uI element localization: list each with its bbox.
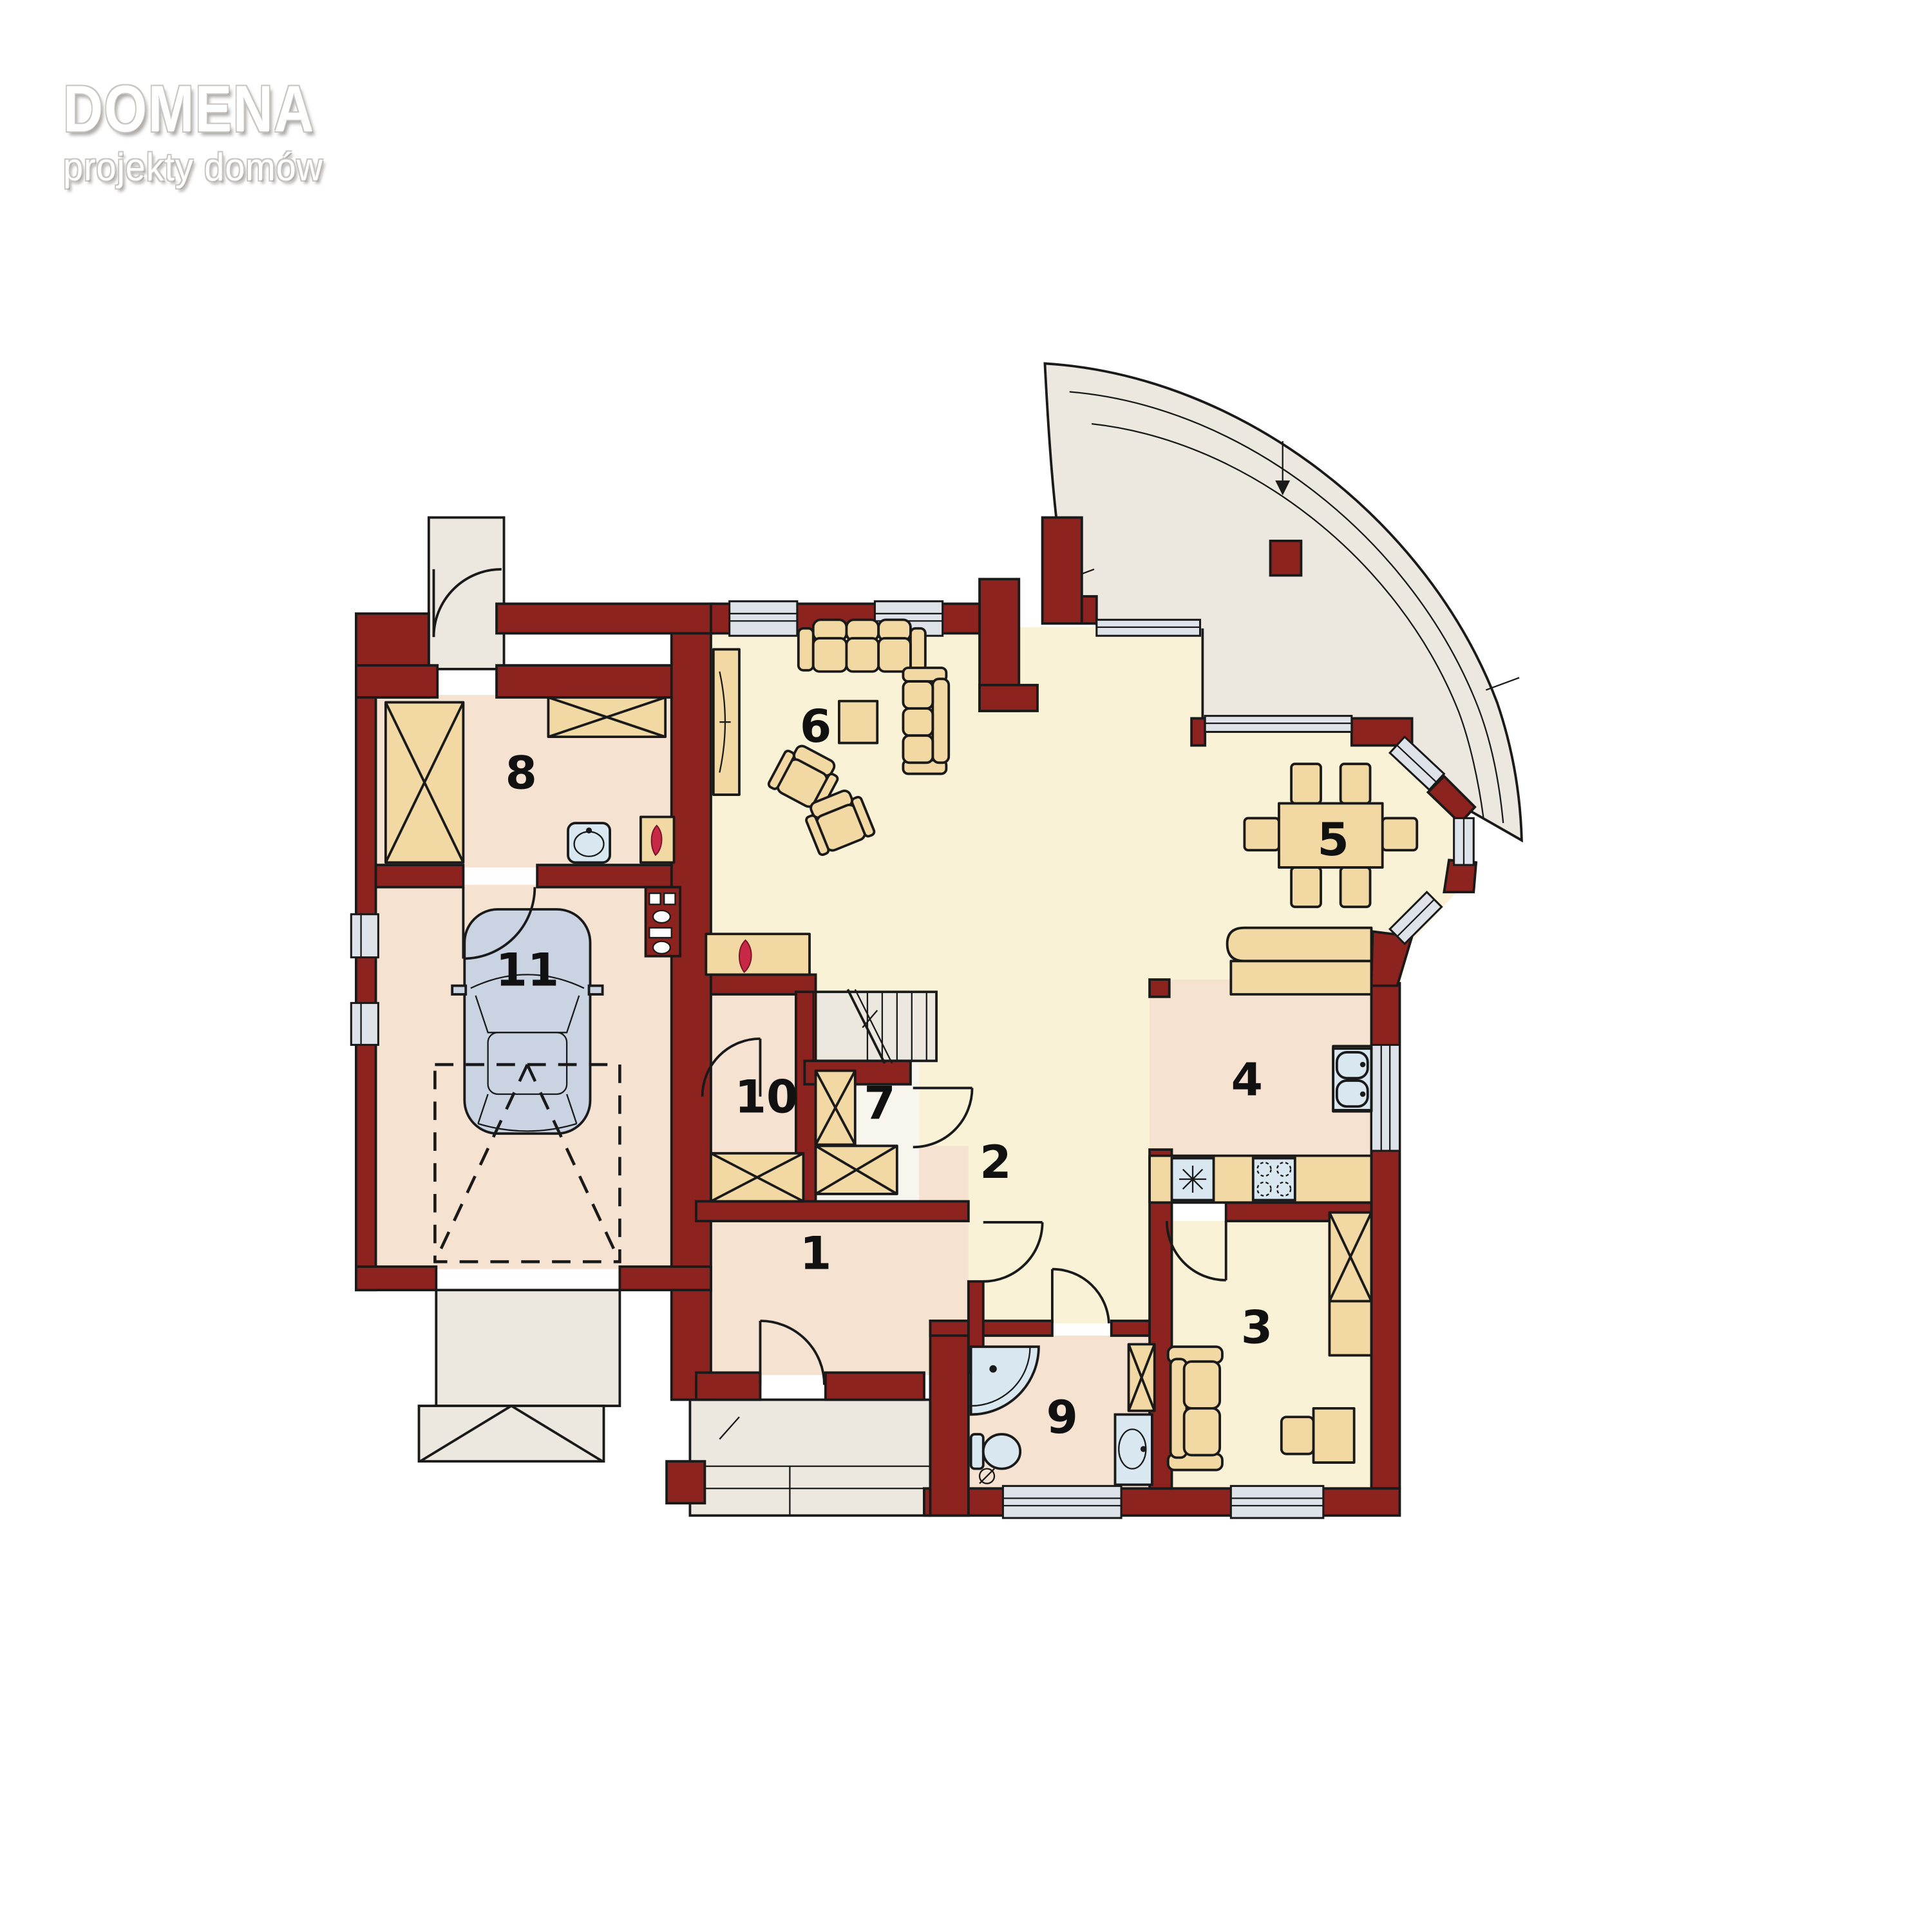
window-room3-south	[1231, 1486, 1323, 1518]
window-living-1	[730, 601, 797, 636]
counter-top	[1231, 961, 1371, 994]
porch-pillar	[667, 1461, 705, 1503]
chimney-vent	[649, 893, 660, 904]
room-label-3: 3	[1241, 1300, 1273, 1354]
kitchen-sink-icon	[1333, 1048, 1371, 1110]
porch-slab	[690, 1399, 930, 1515]
wall-porch-east	[931, 1321, 969, 1515]
window-bath-south	[1003, 1486, 1121, 1518]
wall-bath-north-b	[1112, 1321, 1150, 1336]
room-label-7: 7	[864, 1076, 895, 1130]
chair-icon	[1341, 867, 1370, 907]
wall-kitchen-nw-pier	[1150, 980, 1170, 997]
room-label-1: 1	[800, 1227, 831, 1280]
chimney-vent	[649, 928, 671, 938]
wall-west	[356, 697, 376, 1290]
washbasin-icon	[568, 823, 610, 862]
wall-terrace-L	[1043, 518, 1082, 624]
room-label-5: 5	[1318, 813, 1349, 866]
wall-living-east-foot	[980, 685, 1037, 711]
chair-icon	[1383, 818, 1417, 850]
wall-room1-south-a	[696, 1372, 760, 1399]
sofa-icon	[903, 668, 949, 774]
driveway-slab	[436, 1290, 620, 1406]
wall-room8-garage-a	[376, 865, 464, 887]
wall-dining-north-pier	[1191, 718, 1205, 745]
terrace-tick-2	[1486, 677, 1519, 690]
boiler-icon	[641, 817, 674, 862]
wall-room1-south-b	[826, 1372, 924, 1399]
chimney-vent	[664, 893, 675, 904]
window-kitchen-east	[1371, 1045, 1399, 1151]
room-label-11: 11	[496, 943, 560, 997]
room-label-2: 2	[980, 1135, 1011, 1189]
driveway-apron	[419, 1406, 604, 1461]
wardrobe-icon	[816, 1146, 897, 1194]
chair-icon	[1244, 818, 1279, 850]
wall-south	[924, 1488, 1400, 1515]
toilet-icon	[971, 1434, 1021, 1469]
room-label-4: 4	[1231, 1053, 1263, 1106]
chair-icon	[1341, 764, 1370, 803]
staircase-floor	[813, 992, 936, 1061]
room-label-10: 10	[735, 1070, 799, 1124]
sofa-icon	[1168, 1347, 1222, 1470]
terrace-pillar	[1271, 541, 1302, 576]
window-garage-1	[351, 914, 378, 958]
desk-icon	[1282, 1408, 1354, 1463]
wardrobe-icon	[548, 697, 665, 737]
chair-icon	[1291, 867, 1321, 907]
wall-terrace-L-foot	[1082, 596, 1097, 623]
wall-room8-garage-b	[537, 865, 672, 887]
sofa-icon	[799, 620, 925, 671]
room-label-6: 6	[800, 699, 831, 753]
tv-cabinet-icon	[714, 649, 739, 795]
wall-garage-south-a	[356, 1267, 436, 1290]
window-bay-east	[1454, 818, 1474, 865]
wall-rooms-south	[696, 1201, 969, 1221]
room-label-8: 8	[506, 746, 537, 799]
wardrobe-icon	[816, 1071, 855, 1145]
wardrobe-icon	[711, 1153, 803, 1202]
wall-bath-north-a	[931, 1321, 1052, 1336]
fireplace-icon	[706, 934, 810, 974]
room-label-9: 9	[1046, 1390, 1078, 1444]
wall-garage-south-b	[620, 1267, 711, 1290]
chimney-block	[646, 887, 681, 956]
wardrobe-icon	[1329, 1213, 1371, 1356]
front-porch	[690, 1399, 930, 1515]
chair-icon	[1282, 1417, 1314, 1454]
fridge-icon	[1172, 1158, 1214, 1200]
counter-top	[1227, 928, 1372, 961]
washbasin-icon	[1115, 1414, 1152, 1484]
window-terrace-door	[1097, 620, 1200, 636]
chimney-vent	[653, 911, 670, 923]
driveway	[419, 1290, 620, 1461]
entry-vestibule-room8	[429, 518, 504, 669]
chimney-vent	[653, 942, 670, 954]
wardrobe-icon	[1129, 1344, 1155, 1410]
window-dining-north	[1205, 716, 1352, 732]
chair-icon	[1291, 764, 1321, 803]
wall-top-west	[356, 665, 437, 697]
wall-top-room8	[497, 665, 690, 697]
wardrobe-icon	[386, 703, 464, 863]
floor-plan: 1 2 3 4 5 6 7 8 9 10 11	[0, 0, 1932, 1932]
wall-top-stub	[497, 604, 714, 634]
stove-icon	[1253, 1158, 1295, 1200]
coffee-table-icon	[839, 701, 877, 743]
window-garage-2	[351, 1003, 378, 1045]
